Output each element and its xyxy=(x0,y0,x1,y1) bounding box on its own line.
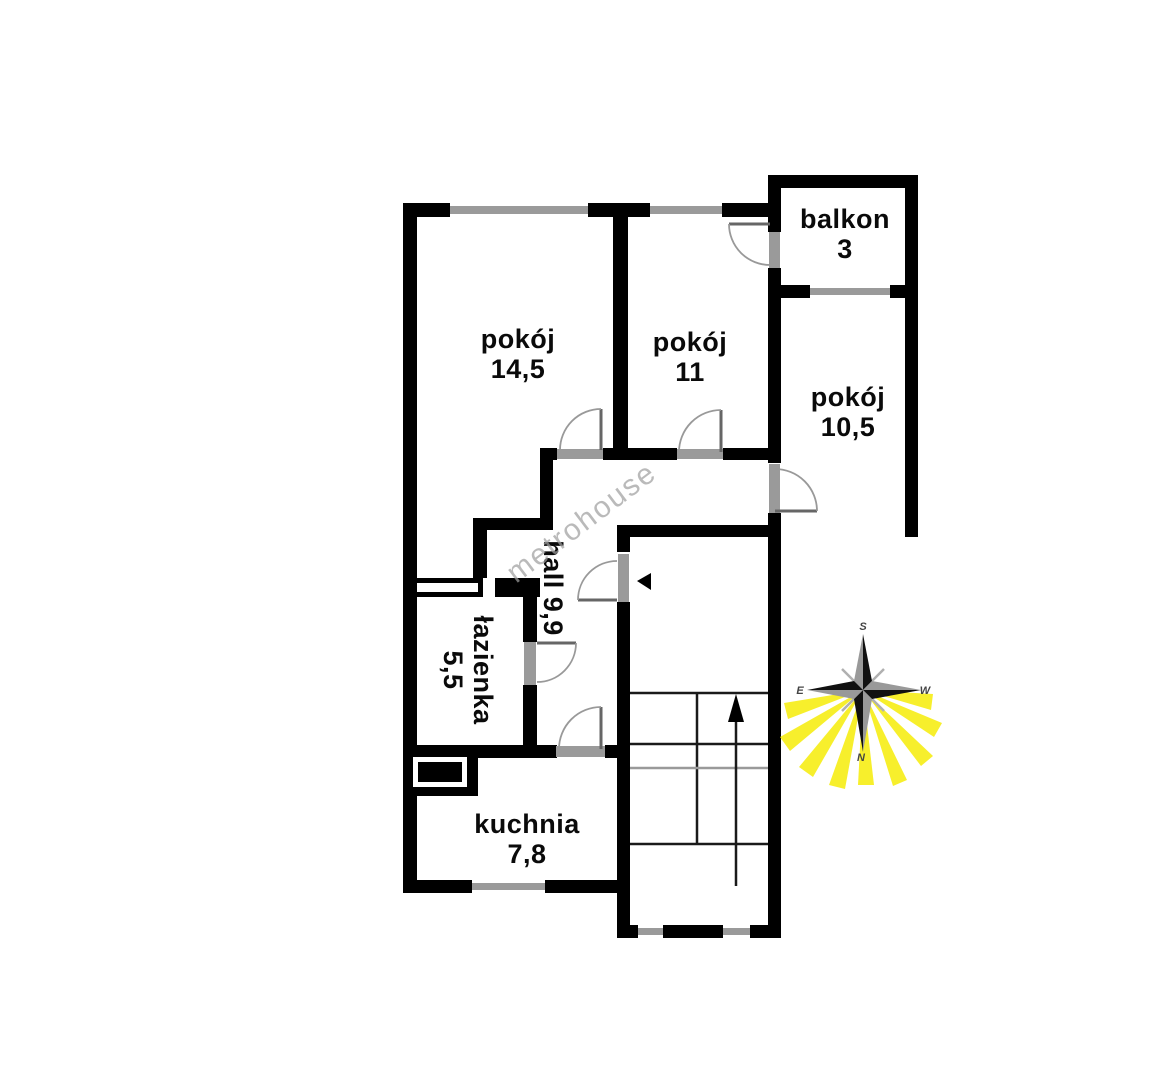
compass-label-left: E xyxy=(796,685,804,697)
compass-rose-icon: S N E W xyxy=(780,621,942,789)
compass-label-top: S xyxy=(859,621,867,633)
stairs-up-arrow-head xyxy=(728,694,744,722)
door-arc-kuchnia xyxy=(559,707,601,749)
room-name: pokój xyxy=(811,382,886,412)
door-arc-pokoj-14-5 xyxy=(560,409,601,450)
room-area: 10,5 xyxy=(821,412,876,442)
room-area: 7,8 xyxy=(507,839,546,869)
room-name: balkon xyxy=(800,204,890,234)
staircase xyxy=(630,693,768,886)
door-leaves xyxy=(537,224,817,749)
compass-label-right: W xyxy=(920,685,932,697)
compass-label-bottom: N xyxy=(857,752,866,764)
room-label-kuchnia: kuchnia 7,8 xyxy=(474,809,580,869)
room-name: pokój xyxy=(481,324,556,354)
room-label-pokoj-14-5: pokój 14,5 xyxy=(481,324,556,384)
room-label-pokoj-10-5: pokój 10,5 xyxy=(811,382,886,442)
room-area: 3 xyxy=(837,234,853,264)
entrance-arrow-icon xyxy=(637,573,651,590)
door-arc-balkon xyxy=(729,224,770,265)
room-name: pokój xyxy=(653,327,728,357)
floor-plan: S N E W pokój 14,5 pokój 11 pokój 10,5 b… xyxy=(0,0,1170,1080)
room-area: 5,5 xyxy=(438,650,468,689)
room-label-pokoj-11: pokój 11 xyxy=(653,327,728,387)
door-arc-lazienka xyxy=(537,643,576,682)
room-name: łazienka xyxy=(468,615,498,724)
door-arc-pokoj-11 xyxy=(679,410,721,452)
room-label-lazienka: łazienka 5,5 xyxy=(438,615,498,724)
room-name: kuchnia xyxy=(474,809,580,839)
room-label-balkon: balkon 3 xyxy=(800,204,890,264)
room-area: 14,5 xyxy=(491,354,546,384)
room-area: 11 xyxy=(675,357,705,387)
door-arc-entrance xyxy=(578,561,617,600)
door-arcs xyxy=(537,224,817,749)
door-arc-pokoj-10-5 xyxy=(775,469,817,511)
room-area: 9,9 xyxy=(538,597,568,636)
